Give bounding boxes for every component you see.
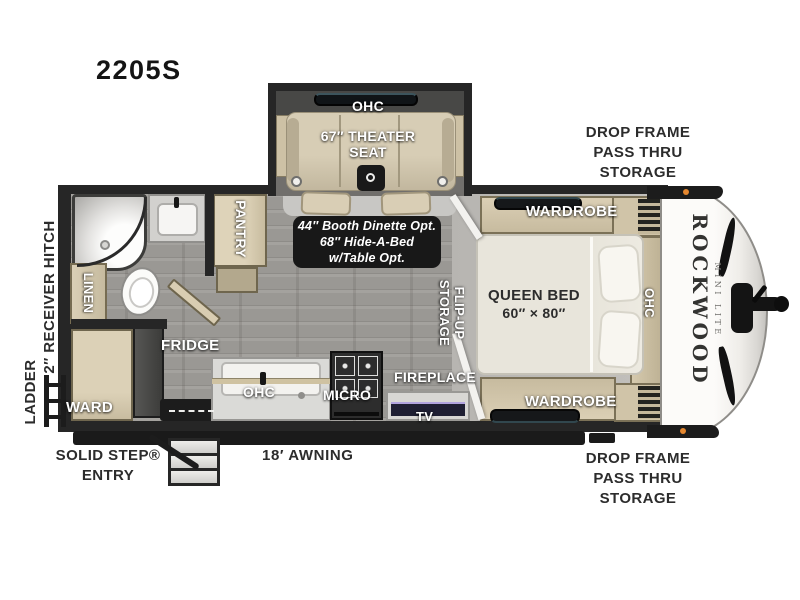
- rear-ladder-icon: [44, 375, 66, 427]
- ward-label: WARD: [66, 399, 113, 416]
- marker-light: [680, 428, 686, 434]
- floorplan-2205s: 2205S OHC 67″ THEATER SEAT LINEN PANTRY …: [0, 0, 800, 600]
- seat-armrest: [442, 118, 454, 182]
- micro-label: MICRO: [323, 387, 371, 403]
- fridge-label: FRIDGE: [161, 337, 219, 354]
- console-dot: [366, 173, 375, 182]
- shower-drain: [100, 240, 110, 250]
- bathroom-wall: [205, 194, 214, 276]
- cupholder: [291, 176, 302, 187]
- theater-seat-label: 67″ THEATER SEAT: [302, 129, 434, 160]
- window: [490, 409, 580, 423]
- step-tread: [171, 468, 217, 483]
- tv-label: TV: [416, 409, 433, 424]
- linen-label: LINEN: [80, 263, 96, 323]
- bed-label: QUEEN BED: [478, 287, 590, 304]
- bed-size-label: 60″ × 80″: [478, 305, 590, 321]
- cabinet-knob: [298, 392, 305, 399]
- awning-label: 18′ AWNING: [262, 447, 354, 464]
- brand-logo: ROCKWOOD MINI LITE: [683, 215, 727, 385]
- wardrobe-label: WARDROBE: [526, 203, 618, 220]
- dinette-option-badge: 44″ Booth Dinette Opt. 68″ Hide-A-Bed w/…: [293, 216, 441, 268]
- cabinet-shelves: [638, 386, 661, 419]
- ladder-label: LADDER: [22, 352, 38, 432]
- entry-threshold: [169, 410, 214, 412]
- drop-frame-storage-label-bottom: DROP FRAME PASS THRU STORAGE: [558, 449, 718, 508]
- oven-handle: [334, 412, 379, 416]
- brand-subname: MINI LITE: [713, 262, 722, 337]
- bathroom-sink: [157, 203, 198, 236]
- footrest: [381, 191, 432, 216]
- tongue-jack: [731, 283, 753, 333]
- receiver-hitch-label: 2″ RECEIVER HITCH: [41, 212, 59, 382]
- ladder-rung: [47, 383, 63, 387]
- shower-door-arc: [7, 127, 147, 267]
- brand-name: ROCKWOOD: [688, 213, 712, 386]
- bedroom-ohc-label: OHC: [639, 280, 657, 326]
- model-number: 2205S: [96, 55, 182, 86]
- slide-ohc-label: OHC: [344, 98, 392, 114]
- blanket-fold: [590, 237, 593, 372]
- pillow: [597, 244, 642, 304]
- pantry-label: PANTRY: [231, 191, 249, 267]
- footrest: [301, 191, 352, 216]
- flip-up-storage-label: FLIP-UP STORAGE: [432, 273, 466, 353]
- solid-step-entry-label: SOLID STEP® ENTRY: [46, 446, 170, 485]
- cabinet-shelves: [638, 199, 661, 234]
- drop-frame-storage-label-top: DROP FRAME PASS THRU STORAGE: [562, 123, 714, 182]
- cupholder: [437, 176, 448, 187]
- wardrobe-label: WARDROBE: [525, 393, 617, 410]
- seat-console: [357, 165, 385, 191]
- ladder-rung: [47, 415, 63, 419]
- kitchen-ohc-label: OHC: [243, 384, 275, 400]
- pillow: [597, 310, 642, 370]
- marker-light: [683, 189, 689, 195]
- faucet: [174, 197, 179, 208]
- fireplace-label: FIREPLACE: [394, 369, 476, 385]
- pantry-base: [216, 267, 258, 293]
- seat-armrest: [287, 118, 299, 182]
- bumper-segment: [589, 433, 615, 443]
- hitch-ball: [774, 296, 789, 312]
- burner: [358, 356, 378, 376]
- burner: [335, 356, 355, 376]
- ladder-rung: [47, 399, 63, 403]
